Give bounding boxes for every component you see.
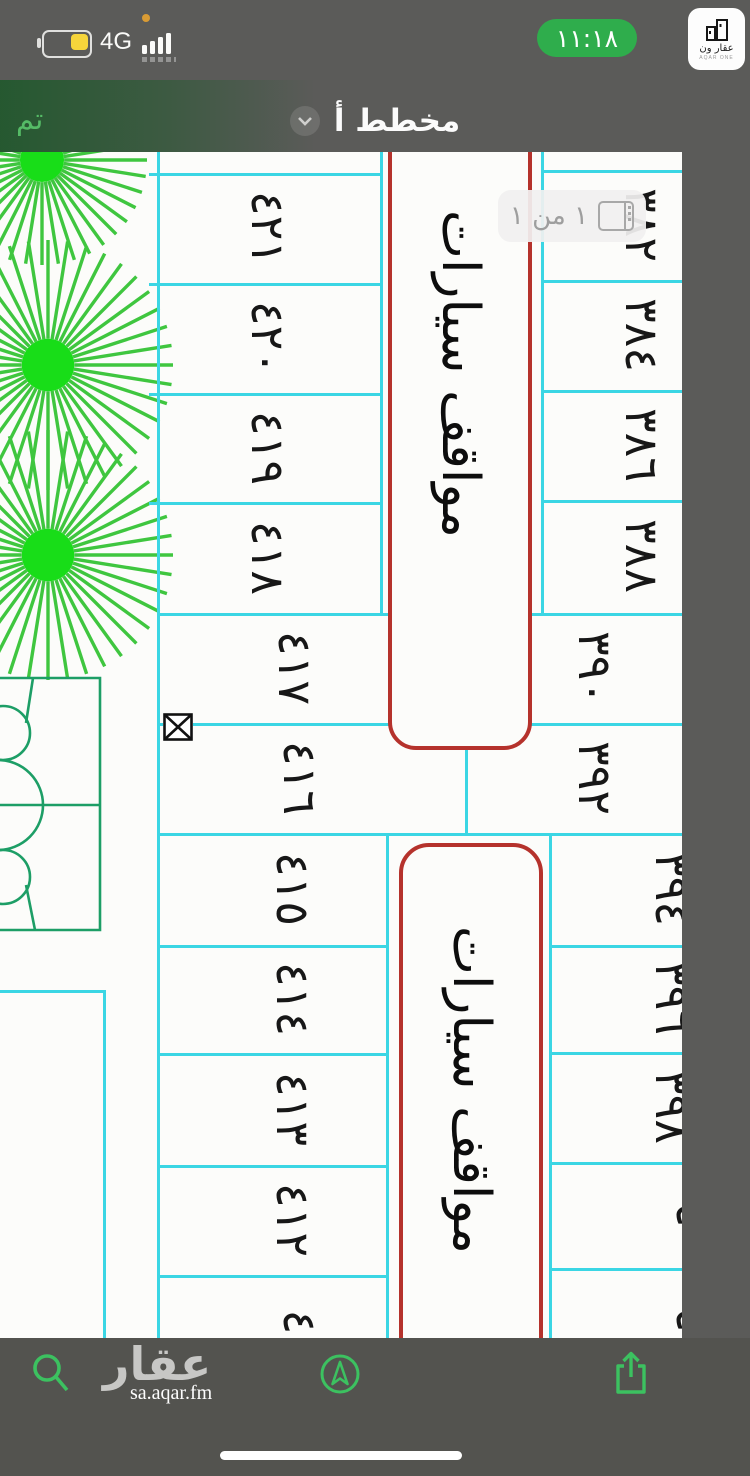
sports-court bbox=[0, 672, 110, 937]
plot-number: ٤١٧ bbox=[268, 631, 322, 705]
plot-divider bbox=[149, 393, 380, 396]
app-screen: 4G ١١:١٨ عقار ون AQAR ONE تم bbox=[0, 0, 750, 1476]
plot-divider bbox=[157, 1053, 386, 1056]
plot-divider bbox=[157, 945, 386, 948]
column-line bbox=[549, 833, 552, 1338]
bottom-toolbar: عقار sa.aqar.fm bbox=[0, 1338, 750, 1476]
status-bar: 4G ١١:١٨ عقار ون AQAR ONE bbox=[0, 0, 750, 90]
network-type-label: 4G bbox=[100, 28, 132, 56]
tree-symbol bbox=[0, 430, 173, 680]
plot-divider bbox=[549, 945, 682, 948]
plot-number: ٣٩٤ bbox=[645, 852, 682, 926]
plan-map-canvas[interactable]: مواقف سيارات مواقف سيارات ٤٢١ ٤٢٠ ٤١٩ ٤١… bbox=[0, 152, 682, 1338]
logo-title: عقار ون bbox=[699, 44, 733, 54]
parking-label-bottom: مواقف سيارات bbox=[441, 926, 501, 1254]
plot-number: ٣٨٦ bbox=[615, 408, 669, 482]
plot-number: ٣٩٨ bbox=[645, 1070, 682, 1144]
block-line bbox=[103, 990, 106, 1338]
street-line bbox=[157, 152, 160, 1338]
column-line bbox=[386, 833, 389, 1338]
plot-number: ٤١٦ bbox=[273, 741, 327, 815]
plot-number: ٤١٤ bbox=[266, 962, 320, 1036]
plot-divider bbox=[149, 502, 380, 505]
indicator-dot bbox=[142, 14, 150, 22]
plot-number: ٤١٥ bbox=[266, 852, 320, 926]
plot-number-partial: ٤ bbox=[666, 1308, 682, 1333]
search-button[interactable] bbox=[30, 1352, 72, 1399]
battery-charge-level bbox=[71, 34, 88, 50]
aqar-one-logo: عقار ون AQAR ONE bbox=[688, 8, 745, 70]
time-pill[interactable]: ١١:١٨ bbox=[537, 19, 637, 57]
parking-label-top: مواقف سيارات bbox=[430, 210, 490, 538]
page-indicator-badge: ١ من ١ bbox=[498, 190, 646, 242]
plot-divider bbox=[149, 173, 380, 176]
plot-divider bbox=[157, 833, 682, 836]
title-dropdown[interactable]: مخطط أ bbox=[0, 90, 750, 152]
chevron-down-icon[interactable] bbox=[290, 106, 320, 136]
plan-title: مخطط أ bbox=[334, 103, 460, 139]
nav-bar: تم مخطط أ bbox=[0, 90, 750, 152]
x-survey-mark bbox=[163, 713, 193, 741]
search-icon bbox=[30, 1352, 72, 1396]
battery-cap bbox=[37, 38, 41, 48]
plot-number: ٤١٢ bbox=[266, 1183, 320, 1257]
plot-number: ٣٩٦ bbox=[645, 961, 682, 1035]
plot-divider bbox=[157, 1165, 386, 1168]
plot-number: ٣٨٤ bbox=[615, 298, 669, 372]
plot-number: ٣٨٨ bbox=[615, 519, 669, 593]
plot-divider bbox=[541, 500, 682, 503]
pages-icon bbox=[598, 201, 634, 231]
home-indicator[interactable] bbox=[220, 1451, 462, 1460]
plot-divider bbox=[541, 280, 682, 283]
plot-divider bbox=[541, 170, 682, 173]
compass-arrow-icon bbox=[318, 1352, 362, 1396]
block-line bbox=[0, 990, 103, 993]
brand-url: sa.aqar.fm bbox=[130, 1382, 212, 1405]
locate-button[interactable] bbox=[318, 1352, 362, 1399]
column-line bbox=[380, 152, 383, 613]
buildings-icon bbox=[704, 18, 730, 42]
plot-number: ٤٢٠ bbox=[241, 301, 295, 375]
plot-number-partial: ٤ bbox=[273, 1310, 327, 1335]
plot-divider bbox=[549, 1268, 682, 1271]
page-indicator-label: ١ من ١ bbox=[510, 201, 588, 231]
plot-divider bbox=[157, 1275, 386, 1278]
plot-divider bbox=[549, 1162, 682, 1165]
plot-number: ٣٩٠ bbox=[568, 631, 622, 705]
plot-divider bbox=[149, 283, 380, 286]
plot-number-partial: ٤ bbox=[666, 1203, 682, 1228]
plot-divider bbox=[541, 390, 682, 393]
plot-number: ٤١٩ bbox=[241, 411, 295, 485]
battery-icon bbox=[42, 30, 92, 58]
signal-bars-icon bbox=[142, 30, 178, 54]
plot-divider bbox=[549, 1052, 682, 1055]
plot-number: ٤٢١ bbox=[241, 191, 295, 265]
logo-subtitle: AQAR ONE bbox=[699, 56, 733, 61]
plot-number: ٣٩٢ bbox=[568, 741, 622, 815]
share-icon bbox=[610, 1350, 652, 1398]
share-button[interactable] bbox=[610, 1350, 652, 1401]
plot-number: ٤١٨ bbox=[241, 521, 295, 595]
plot-number: ٤١٣ bbox=[266, 1072, 320, 1146]
